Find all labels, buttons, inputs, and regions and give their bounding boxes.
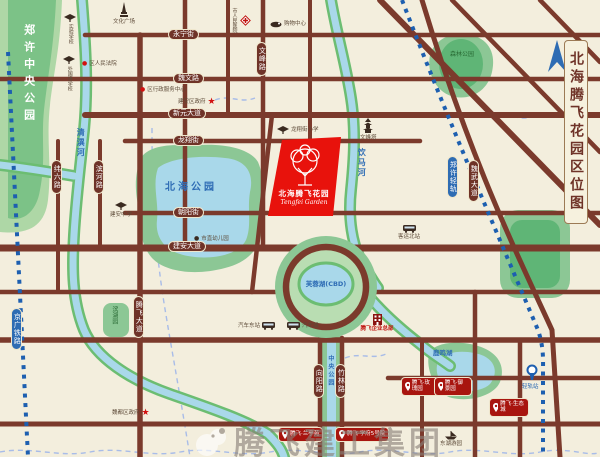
hospital-icon <box>239 14 252 27</box>
poi-bus-station-east: 汽车东站 <box>238 322 275 330</box>
poi-mall: 购物中心 <box>270 21 306 28</box>
poi-label: 魏都区政府 <box>112 410 140 416</box>
red-star-icon: ★ <box>208 98 216 107</box>
poi-label: 客运北站 <box>398 234 420 240</box>
poi-label: 外国语学校 <box>66 66 72 91</box>
red-dot-icon: ● <box>82 61 87 67</box>
badge-project-3: 腾飞·生态城 <box>490 399 528 416</box>
road-label-wenfeng: 文峰路 <box>256 42 267 76</box>
poi-admin-center: ● 区行政服务中心 <box>140 87 189 93</box>
poi-label: 汽车东站 <box>238 323 260 329</box>
bus-icon <box>287 322 300 330</box>
map-title: 北海腾飞花园区位图 <box>564 40 588 224</box>
poi-pagoda: 文峰塔 <box>360 118 377 141</box>
headquarters-building-icon <box>372 314 383 325</box>
map-pin-icon <box>493 403 498 412</box>
beihai-park-label: 北海公园 <box>165 182 217 194</box>
poi-district-government: 建安区政府 ★ <box>178 98 216 107</box>
poi-label: 区行政服务中心 <box>147 87 189 93</box>
road-label-tengfei: 腾飞大道 <box>133 296 144 338</box>
mall-icon <box>270 21 282 28</box>
watermark-text: 腾飞建工集团 <box>234 418 444 457</box>
road-label-xinyuan: 新元大道 <box>168 108 206 119</box>
badge-label: 腾飞·玫瑰园 <box>412 380 435 393</box>
luming-lake-label: 鹿鸣湖 <box>433 350 453 357</box>
poi-foreign-language-school: 外国语学校 <box>63 56 75 91</box>
road-label-zhulin: 竹林路 <box>335 364 346 398</box>
linear-park-label: 中央公园 <box>326 355 333 387</box>
poi-label: 建安区政府 <box>178 99 206 105</box>
road-label-jianan: 建安大道 <box>168 241 206 252</box>
company-watermark: 腾飞建工集团 <box>194 418 444 457</box>
central-park-label: 郑许中央公园 <box>22 24 35 126</box>
road-label-xiangyang: 向阳路 <box>313 364 324 398</box>
dot-icon: ● <box>194 236 199 242</box>
badge-label: 腾飞·生态城 <box>500 401 525 414</box>
poi-label: 建安中学 <box>110 212 132 218</box>
yinma-river-label: 饮马河 <box>357 148 366 178</box>
map-pin-icon <box>438 382 443 391</box>
lakeside-garden-label: 滨湖园 <box>110 306 117 324</box>
poi-label: 购物中心 <box>284 21 306 27</box>
poi-tengfei-hq: 腾飞企业总部 <box>352 314 402 332</box>
panda-logo-icon <box>194 425 230 457</box>
poi-label: 市直幼儿园 <box>201 236 229 242</box>
poi-middle-school: 建安中学 <box>110 202 132 218</box>
school-icon <box>277 126 289 135</box>
boat-icon <box>444 431 458 440</box>
road-label-longxiang: 龙翔街 <box>173 135 204 146</box>
pagoda-icon <box>362 118 374 134</box>
monument-icon <box>119 2 129 18</box>
poi-kindergarten: ● 市直幼儿园 <box>194 236 229 242</box>
road-label-binhe: 滨河路 <box>93 160 104 194</box>
school-icon <box>63 56 75 65</box>
poi-weidu-government: 魏都区政府 ★ <box>112 409 150 418</box>
poi-auto-city: 汽车城 <box>287 322 319 330</box>
map-base-canvas <box>0 0 600 457</box>
badge-label: 腾飞·御景园 <box>445 380 468 393</box>
project-tagline: Tengfei Garden <box>268 199 340 206</box>
rail-label-zhengxu: 郑许轻轨 <box>447 156 458 198</box>
red-star-icon: ★ <box>142 409 150 418</box>
project-site-label: 北海腾飞花园 Tengfei Garden <box>268 188 340 206</box>
poi-label: 汽车城 <box>302 323 319 329</box>
qingyi-river-label: 清潩河 <box>76 128 85 158</box>
poi-hospital: 市人民医院 <box>231 8 252 33</box>
forest-park-label: 森林公园 <box>433 52 491 59</box>
poi-culture-square: 文化广场 <box>113 2 135 25</box>
lightrail-station-label: 轻轨站 <box>522 384 539 390</box>
badge-project-2: 腾飞·御景园 <box>435 378 471 395</box>
road-label-chaoyang: 朝阳街 <box>173 207 204 218</box>
location-map: 北海腾飞花园区位图 郑许中央公园 北海公园 森林公园 中央公园 滨湖园 清潩河 … <box>0 0 600 457</box>
poi-label: 市人民医院 <box>231 8 237 33</box>
poi-district-court: ● 区人民法院 <box>82 61 117 67</box>
bus-icon <box>262 322 275 330</box>
school-icon <box>64 14 76 23</box>
furong-lake-label: 芙蓉湖(CBD) <box>296 281 356 288</box>
poi-label: 实验学校 <box>67 24 73 44</box>
poi-label: 龙翔街小学 <box>291 127 319 133</box>
red-dot-icon: ● <box>140 87 145 93</box>
road-label-yongning: 永宁街 <box>168 29 199 40</box>
project-name: 北海腾飞花园 <box>268 188 340 199</box>
poi-label: 腾飞企业总部 <box>360 326 393 332</box>
road-label-weiliu: 纬六路 <box>51 160 62 194</box>
poi-label: 文峰塔 <box>360 135 377 141</box>
road-label-weiwen: 魏文路 <box>173 73 204 84</box>
poi-label: 文化广场 <box>113 19 135 25</box>
road-label-weiwu: 魏武大道 <box>468 160 479 202</box>
map-pin-icon <box>405 382 410 391</box>
school-icon <box>115 202 127 211</box>
poi-label: 区人民法院 <box>89 61 117 67</box>
badge-project-1: 腾飞·玫瑰园 <box>402 378 438 395</box>
poi-coach-station: 客运北站 <box>398 225 420 240</box>
rail-label-jingguang: 京广铁路 <box>11 308 22 350</box>
poi-primary-school: 龙翔街小学 <box>277 126 319 135</box>
poi-experimental-school: 实验学校 <box>64 14 76 44</box>
bus-icon <box>403 225 416 233</box>
